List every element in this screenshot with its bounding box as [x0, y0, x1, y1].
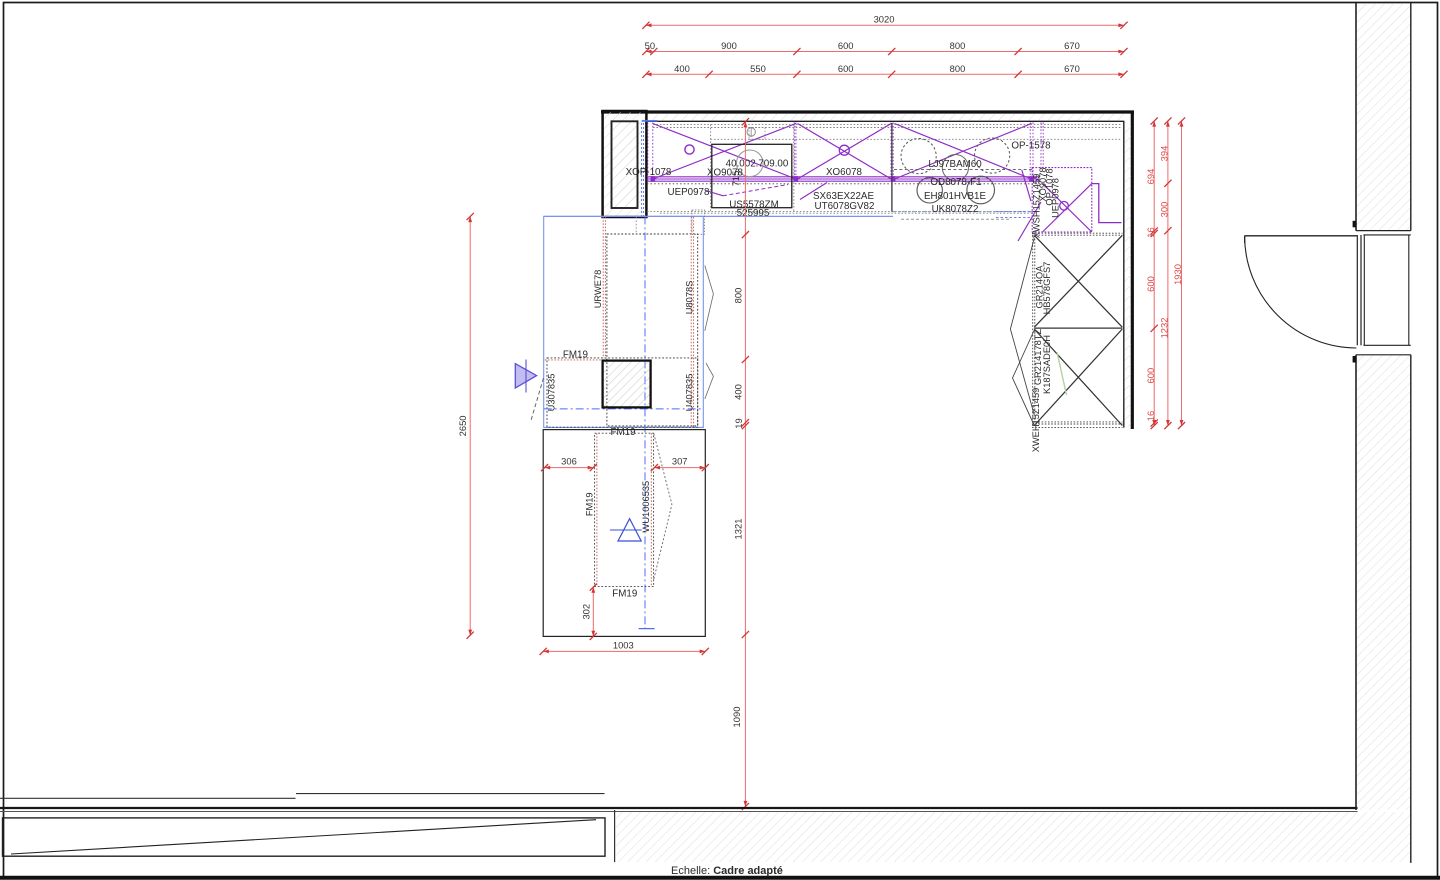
svg-text:UT6078GV82: UT6078GV82 — [815, 201, 875, 212]
svg-text:1090: 1090 — [731, 707, 742, 728]
svg-text:600: 600 — [838, 63, 854, 74]
svg-text:400: 400 — [732, 384, 743, 400]
svg-text:UK8078Z2: UK8078Z2 — [932, 204, 979, 215]
svg-text:URWE78: URWE78 — [593, 270, 603, 309]
svg-text:1232: 1232 — [1159, 318, 1170, 339]
svg-text:800: 800 — [732, 288, 743, 304]
svg-text:FM19: FM19 — [563, 349, 588, 360]
svg-text:550: 550 — [750, 63, 766, 74]
svg-text:302: 302 — [581, 604, 592, 620]
svg-text:16: 16 — [1145, 411, 1156, 421]
svg-text:16: 16 — [1145, 227, 1156, 237]
svg-text:XO6078: XO6078 — [826, 167, 863, 178]
svg-text:715: 715 — [731, 171, 741, 187]
svg-text:3020: 3020 — [874, 13, 895, 24]
svg-text:UEP0978: UEP0978 — [668, 187, 710, 198]
svg-text:2650: 2650 — [457, 415, 468, 436]
svg-text:U407835: U407835 — [685, 374, 695, 412]
svg-text:Echelle: Cadre adapté: Echelle: Cadre adapté — [671, 865, 783, 877]
svg-text:OD8078-F1: OD8078-F1 — [930, 177, 981, 188]
svg-text:EH801HVB1E: EH801HVB1E — [924, 191, 987, 202]
svg-text:525995: 525995 — [737, 208, 770, 219]
svg-text:HB578GFS7: HB578GFS7 — [1042, 262, 1052, 315]
svg-text:600: 600 — [1145, 276, 1156, 292]
svg-text:307: 307 — [672, 455, 688, 466]
svg-text:WU1006535: WU1006535 — [641, 481, 651, 533]
svg-text:670: 670 — [1064, 40, 1080, 51]
svg-text:U8078S: U8078S — [685, 281, 695, 315]
svg-text:400: 400 — [674, 63, 690, 74]
svg-text:OP-1578: OP-1578 — [1011, 141, 1051, 152]
svg-text:1321: 1321 — [732, 519, 743, 540]
svg-text:U307835: U307835 — [547, 374, 557, 412]
svg-text:600: 600 — [838, 40, 854, 51]
svg-text:670: 670 — [1064, 63, 1080, 74]
svg-text:694: 694 — [1145, 169, 1156, 185]
svg-text:900: 900 — [721, 40, 737, 51]
svg-text:FM19: FM19 — [610, 427, 635, 438]
svg-text:FM19: FM19 — [612, 589, 637, 600]
svg-text:19: 19 — [733, 418, 744, 428]
svg-text:306: 306 — [561, 455, 577, 466]
svg-text:1003: 1003 — [613, 639, 634, 650]
svg-text:600: 600 — [1145, 368, 1156, 384]
svg-text:LJ97BAM60: LJ97BAM60 — [928, 159, 982, 170]
svg-text:UEP0978: UEP0978 — [1051, 178, 1061, 218]
svg-text:394: 394 — [1159, 146, 1170, 162]
svg-text:800: 800 — [950, 63, 966, 74]
svg-text:1930: 1930 — [1172, 264, 1183, 285]
svg-text:XOP-1078: XOP-1078 — [626, 167, 672, 178]
svg-text:800: 800 — [950, 40, 966, 51]
svg-text:40.002.709.00: 40.002.709.00 — [726, 159, 789, 170]
svg-text:FM19: FM19 — [585, 492, 595, 516]
svg-text:50: 50 — [645, 40, 655, 51]
svg-text:300: 300 — [1159, 202, 1170, 218]
